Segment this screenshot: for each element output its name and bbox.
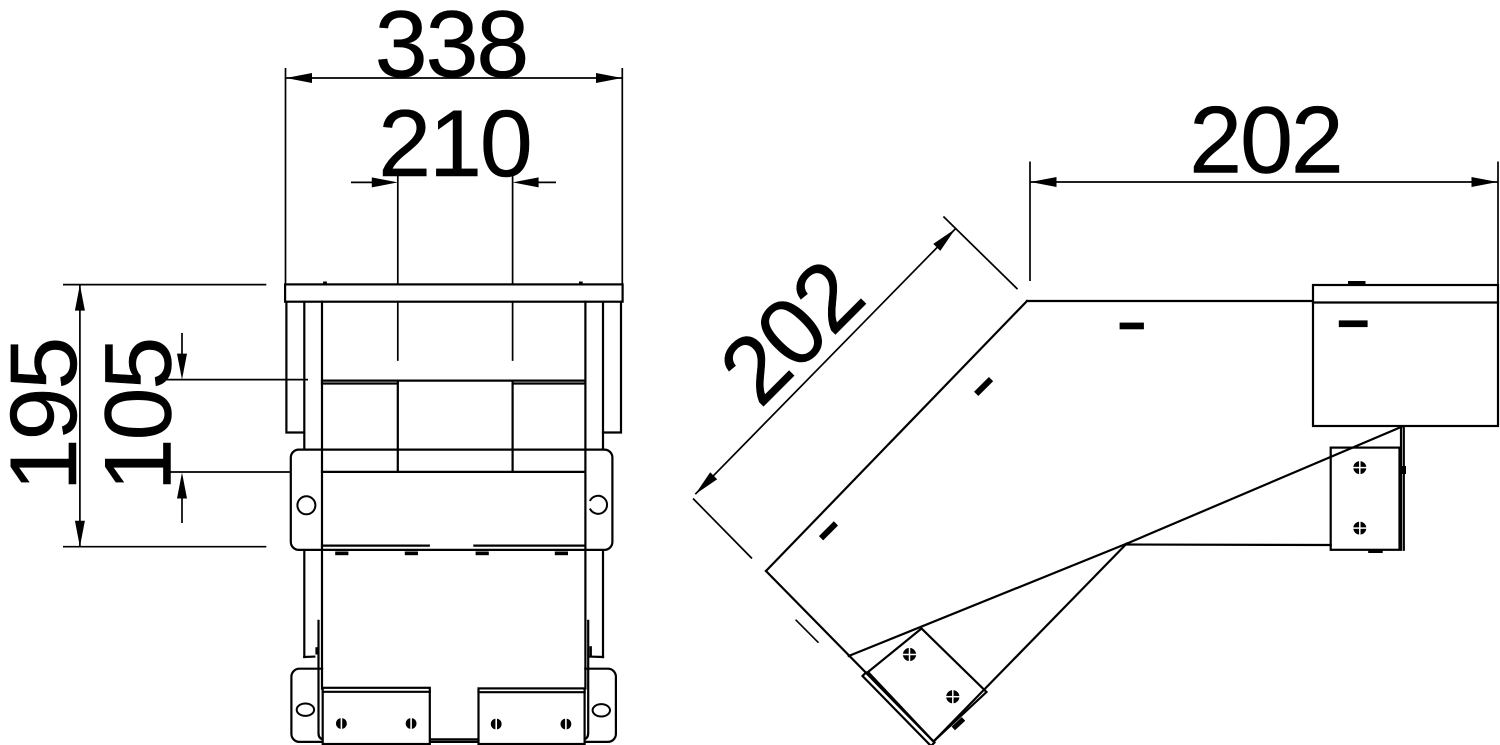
svg-text:338: 338 [375,0,528,98]
svg-text:195: 195 [0,339,97,492]
svg-text:105: 105 [86,339,192,492]
svg-text:210: 210 [378,91,531,197]
svg-text:202: 202 [1189,88,1342,194]
